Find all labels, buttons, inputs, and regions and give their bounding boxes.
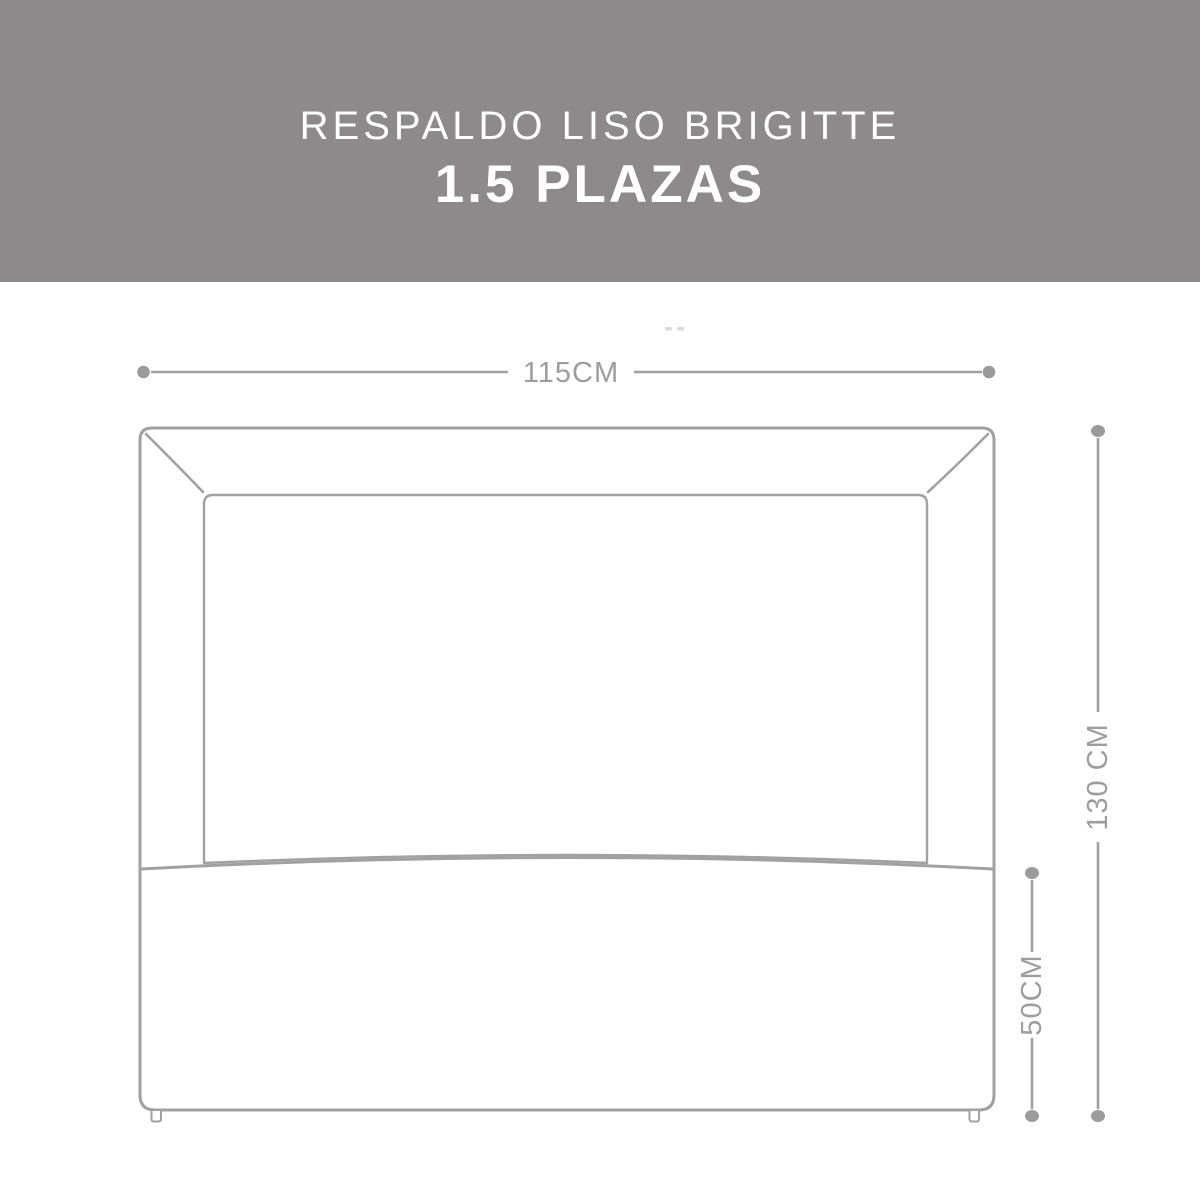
headboard-inner-panel xyxy=(204,495,927,862)
lower-height-top-endpoint-dot xyxy=(1025,867,1039,879)
right-corner-seam xyxy=(928,434,988,492)
height-dimension-bottom-endpoint-dot xyxy=(1091,1110,1105,1122)
lower-height-dimension-label: 50CM xyxy=(1016,954,1048,1035)
faint-artifact-marks xyxy=(665,327,684,331)
height-dimension-label: 130 CM xyxy=(1082,723,1114,831)
height-dimension-top-endpoint-dot xyxy=(1091,425,1105,437)
headboard-leg-right xyxy=(970,1111,980,1122)
headboard-outer-outline xyxy=(140,428,994,1110)
width-dimension-left-endpoint-dot xyxy=(137,366,150,379)
headboard-leg-left xyxy=(152,1111,162,1122)
width-dimension-label: 115CM xyxy=(523,357,619,389)
lower-height-bottom-endpoint-dot xyxy=(1025,1110,1039,1122)
headboard-drawing xyxy=(140,428,994,1122)
width-dimension-right-endpoint-dot xyxy=(983,366,996,379)
dimension-diagram: 115CM 130 CM 50CM xyxy=(0,0,1200,1200)
left-corner-seam xyxy=(146,434,203,492)
